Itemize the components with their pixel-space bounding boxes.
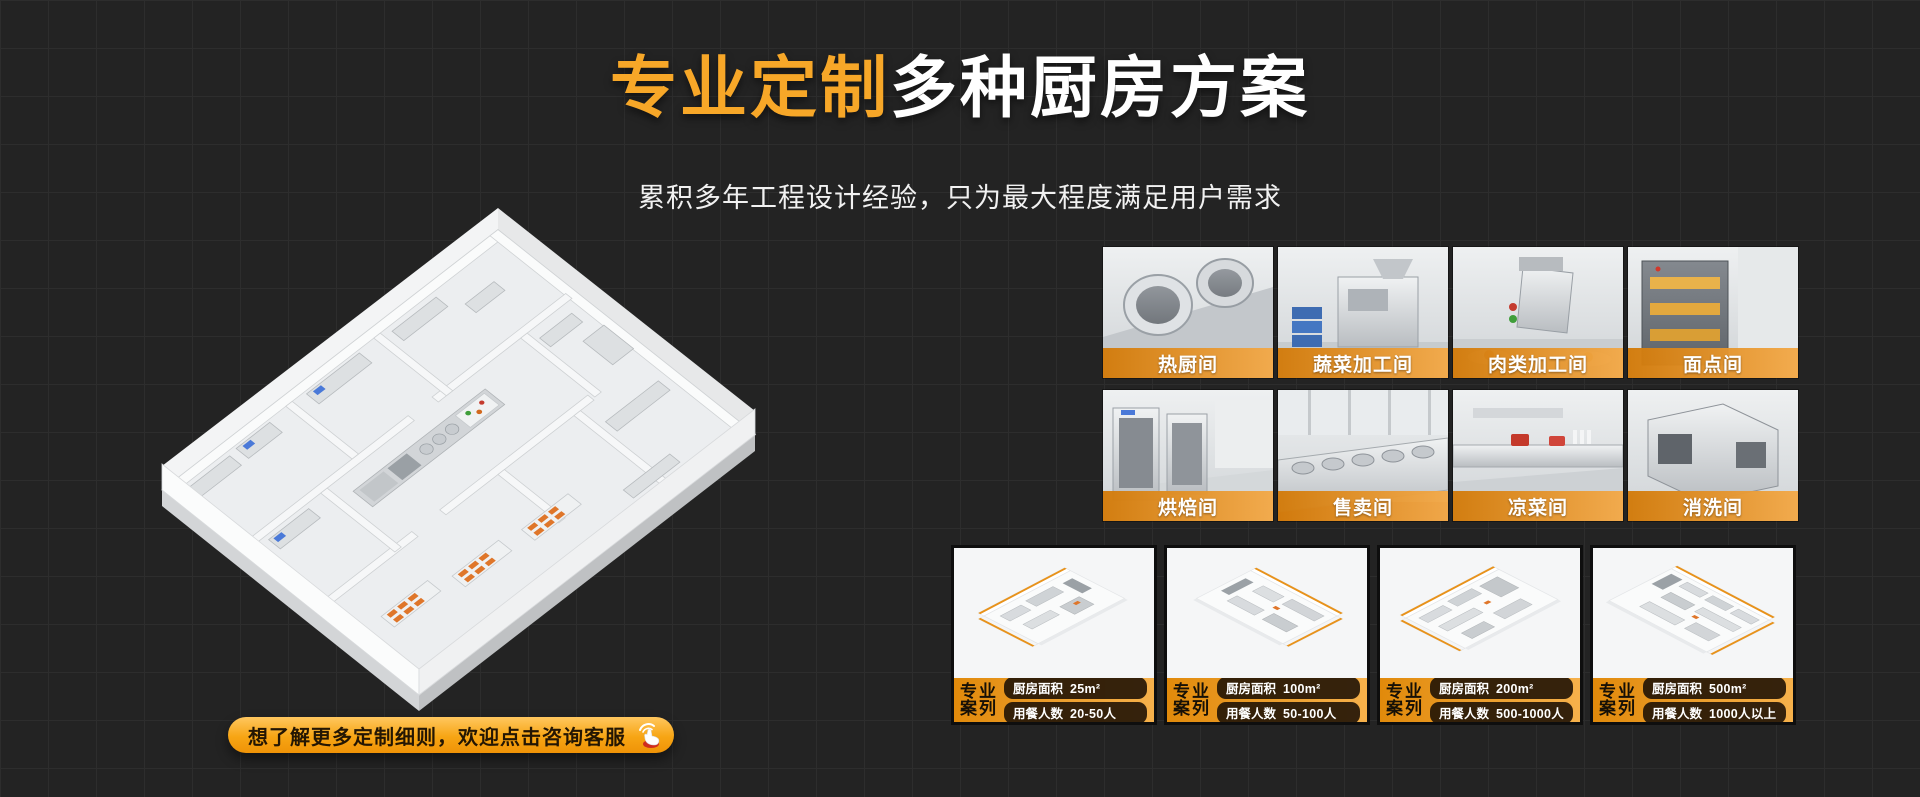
case-card-500m2[interactable]: 专业 案列 厨房面积500m² 用餐人数1000人以上: [1590, 545, 1796, 725]
case-tag: 专业 案列: [1173, 683, 1211, 718]
case-tag: 专业 案列: [1599, 683, 1637, 718]
room-card-label: 消洗间: [1628, 491, 1798, 521]
case-card-200m2[interactable]: 专业 案列 厨房面积200m² 用餐人数500-1000人: [1377, 545, 1583, 725]
room-card-meat-processing[interactable]: 肉类加工间: [1453, 247, 1623, 378]
diners-pill: 用餐人数1000人以上: [1643, 702, 1786, 724]
case-card-bar: 专业 案列 厨房面积25m² 用餐人数20-50人: [954, 678, 1154, 722]
case-card-100m2[interactable]: 专业 案列 厨房面积100m² 用餐人数50-100人: [1164, 545, 1370, 725]
area-label: 厨房面积: [1439, 678, 1489, 697]
area-label: 厨房面积: [1226, 678, 1276, 697]
diners-value: 500-1000人: [1496, 703, 1564, 722]
case-tag: 专业 案列: [1386, 683, 1424, 718]
kitchen-floorplan-illustration: [140, 208, 800, 720]
area-value: 25m²: [1070, 682, 1100, 696]
kitchen-area-pill: 厨房面积500m²: [1643, 677, 1786, 699]
room-card-serving[interactable]: 售卖间: [1278, 390, 1448, 521]
room-card-label: 凉菜间: [1453, 491, 1623, 521]
room-card-label: 烘焙间: [1103, 491, 1273, 521]
diners-value: 1000人以上: [1709, 703, 1776, 722]
diners-value: 50-100人: [1283, 703, 1337, 722]
case-tag-line2: 案列: [1386, 700, 1424, 717]
case-tag-line1: 专业: [1386, 683, 1424, 700]
room-card-dishwashing[interactable]: 消洗间: [1628, 390, 1798, 521]
diners-label: 用餐人数: [1439, 703, 1489, 722]
area-label: 厨房面积: [1013, 678, 1063, 697]
kitchen-area-pill: 厨房面积25m²: [1004, 677, 1147, 699]
diners-pill: 用餐人数50-100人: [1217, 702, 1360, 724]
area-value: 200m²: [1496, 682, 1534, 696]
case-tag: 专业 案列: [960, 683, 998, 718]
case-tag-line1: 专业: [960, 683, 998, 700]
case-card-bar: 专业 案列 厨房面积200m² 用餐人数500-1000人: [1380, 678, 1580, 722]
room-card-label: 售卖间: [1278, 491, 1448, 521]
page-title-highlight: 专业定制: [610, 51, 890, 126]
area-value: 500m²: [1709, 682, 1747, 696]
diners-value: 20-50人: [1070, 703, 1116, 722]
area-label: 厨房面积: [1652, 678, 1702, 697]
page-title-rest: 多种厨房方案: [890, 51, 1310, 126]
case-thumbnail: [1593, 548, 1793, 678]
diners-pill: 用餐人数500-1000人: [1430, 702, 1573, 724]
case-stats: 厨房面积200m² 用餐人数500-1000人: [1430, 677, 1573, 724]
hero-section: 专业定制多种厨房方案 累积多年工程设计经验，只为最大程度满足用户需求: [0, 0, 1920, 797]
case-stats: 厨房面积100m² 用餐人数50-100人: [1217, 677, 1360, 724]
contact-cta-button[interactable]: 想了解更多定制细则，欢迎点击咨询客服: [228, 717, 674, 753]
case-stats: 厨房面积25m² 用餐人数20-50人: [1004, 677, 1147, 724]
case-thumbnail: [1167, 548, 1367, 678]
room-card-pastry[interactable]: 面点间: [1628, 247, 1798, 378]
kitchen-area-pill: 厨房面积200m²: [1430, 677, 1573, 699]
case-tag-line2: 案列: [1599, 700, 1637, 717]
case-card-25m2[interactable]: 专业 案列 厨房面积25m² 用餐人数20-50人: [951, 545, 1157, 725]
room-card-label: 肉类加工间: [1453, 348, 1623, 378]
case-card-bar: 专业 案列 厨房面积500m² 用餐人数1000人以上: [1593, 678, 1793, 722]
room-card-vegetable-processing[interactable]: 蔬菜加工间: [1278, 247, 1448, 378]
case-tag-line2: 案列: [960, 700, 998, 717]
contact-cta-label: 想了解更多定制细则，欢迎点击咨询客服: [248, 721, 626, 750]
room-card-label: 面点间: [1628, 348, 1798, 378]
case-cards-row: 专业 案列 厨房面积25m² 用餐人数20-50人: [951, 545, 1796, 725]
room-card-label: 蔬菜加工间: [1278, 348, 1448, 378]
kitchen-area-pill: 厨房面积100m²: [1217, 677, 1360, 699]
diners-pill: 用餐人数20-50人: [1004, 702, 1147, 724]
diners-label: 用餐人数: [1226, 703, 1276, 722]
case-card-bar: 专业 案列 厨房面积100m² 用餐人数50-100人: [1167, 678, 1367, 722]
area-value: 100m²: [1283, 682, 1321, 696]
room-card-baking[interactable]: 烘焙间: [1103, 390, 1273, 521]
diners-label: 用餐人数: [1652, 703, 1702, 722]
room-card-label: 热厨间: [1103, 348, 1273, 378]
page-title: 专业定制多种厨房方案: [0, 52, 1920, 126]
case-tag-line2: 案列: [1173, 700, 1211, 717]
click-hand-icon: [634, 720, 664, 750]
case-tag-line1: 专业: [1173, 683, 1211, 700]
case-thumbnail: [1380, 548, 1580, 678]
diners-label: 用餐人数: [1013, 703, 1063, 722]
room-card-hot-kitchen[interactable]: 热厨间: [1103, 247, 1273, 378]
case-thumbnail: [954, 548, 1154, 678]
room-cards-grid: 热厨间 蔬菜加工间: [1103, 247, 1798, 521]
case-stats: 厨房面积500m² 用餐人数1000人以上: [1643, 677, 1786, 724]
case-tag-line1: 专业: [1599, 683, 1637, 700]
room-card-cold-dish[interactable]: 凉菜间: [1453, 390, 1623, 521]
